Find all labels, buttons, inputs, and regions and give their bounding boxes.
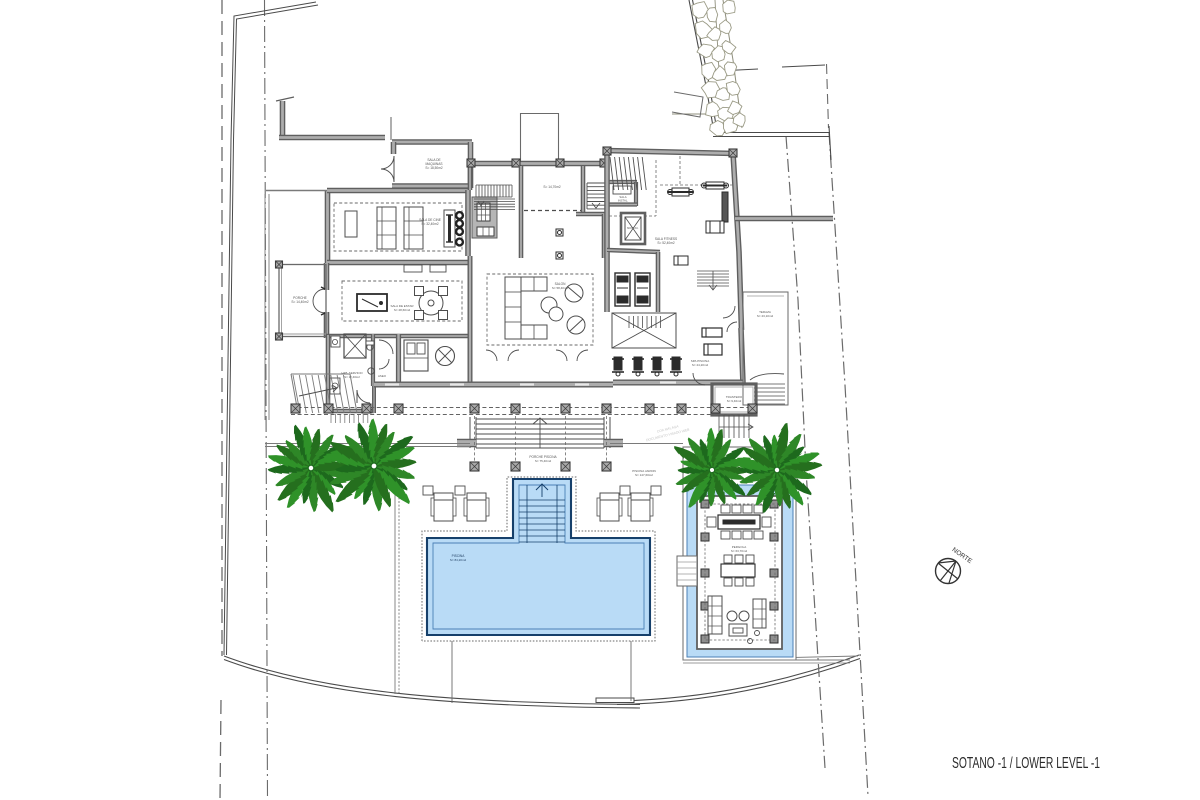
svg-text:S= 63,70m2: S= 63,70m2 <box>731 549 748 553</box>
svg-text:S= 52,40m2: S= 52,40m2 <box>657 241 675 245</box>
svg-text:S= 12,40m2: S= 12,40m2 <box>344 375 360 379</box>
svg-text:S= 75,40m2: S= 75,40m2 <box>535 459 552 463</box>
svg-text:S= 147,60m2: S= 147,60m2 <box>635 473 653 477</box>
svg-text:ASEO: ASEO <box>378 374 387 378</box>
svg-text:S= 14,70m2: S= 14,70m2 <box>543 185 561 189</box>
svg-text:S= 14,40m2: S= 14,40m2 <box>291 300 309 304</box>
svg-text:S= 23,10m2: S= 23,10m2 <box>757 314 774 318</box>
svg-text:S= 28,60m2: S= 28,60m2 <box>394 308 411 312</box>
svg-text:S= 9,40m2: S= 9,40m2 <box>727 399 742 403</box>
svg-text:S= 32,40m2: S= 32,40m2 <box>421 222 439 226</box>
svg-text:SOTANO -1 / LOWER LEVEL -1: SOTANO -1 / LOWER LEVEL -1 <box>952 755 1100 772</box>
svg-text:S= 24,20m2: S= 24,20m2 <box>692 363 709 367</box>
svg-text:INSTAL.: INSTAL. <box>618 199 629 203</box>
svg-text:S= 18,50m2: S= 18,50m2 <box>425 166 443 170</box>
svg-text:MONTAC.: MONTAC. <box>627 226 639 230</box>
svg-text:S= 58,40m2: S= 58,40m2 <box>552 286 569 290</box>
svg-text:S= 84,20m2: S= 84,20m2 <box>450 558 467 562</box>
